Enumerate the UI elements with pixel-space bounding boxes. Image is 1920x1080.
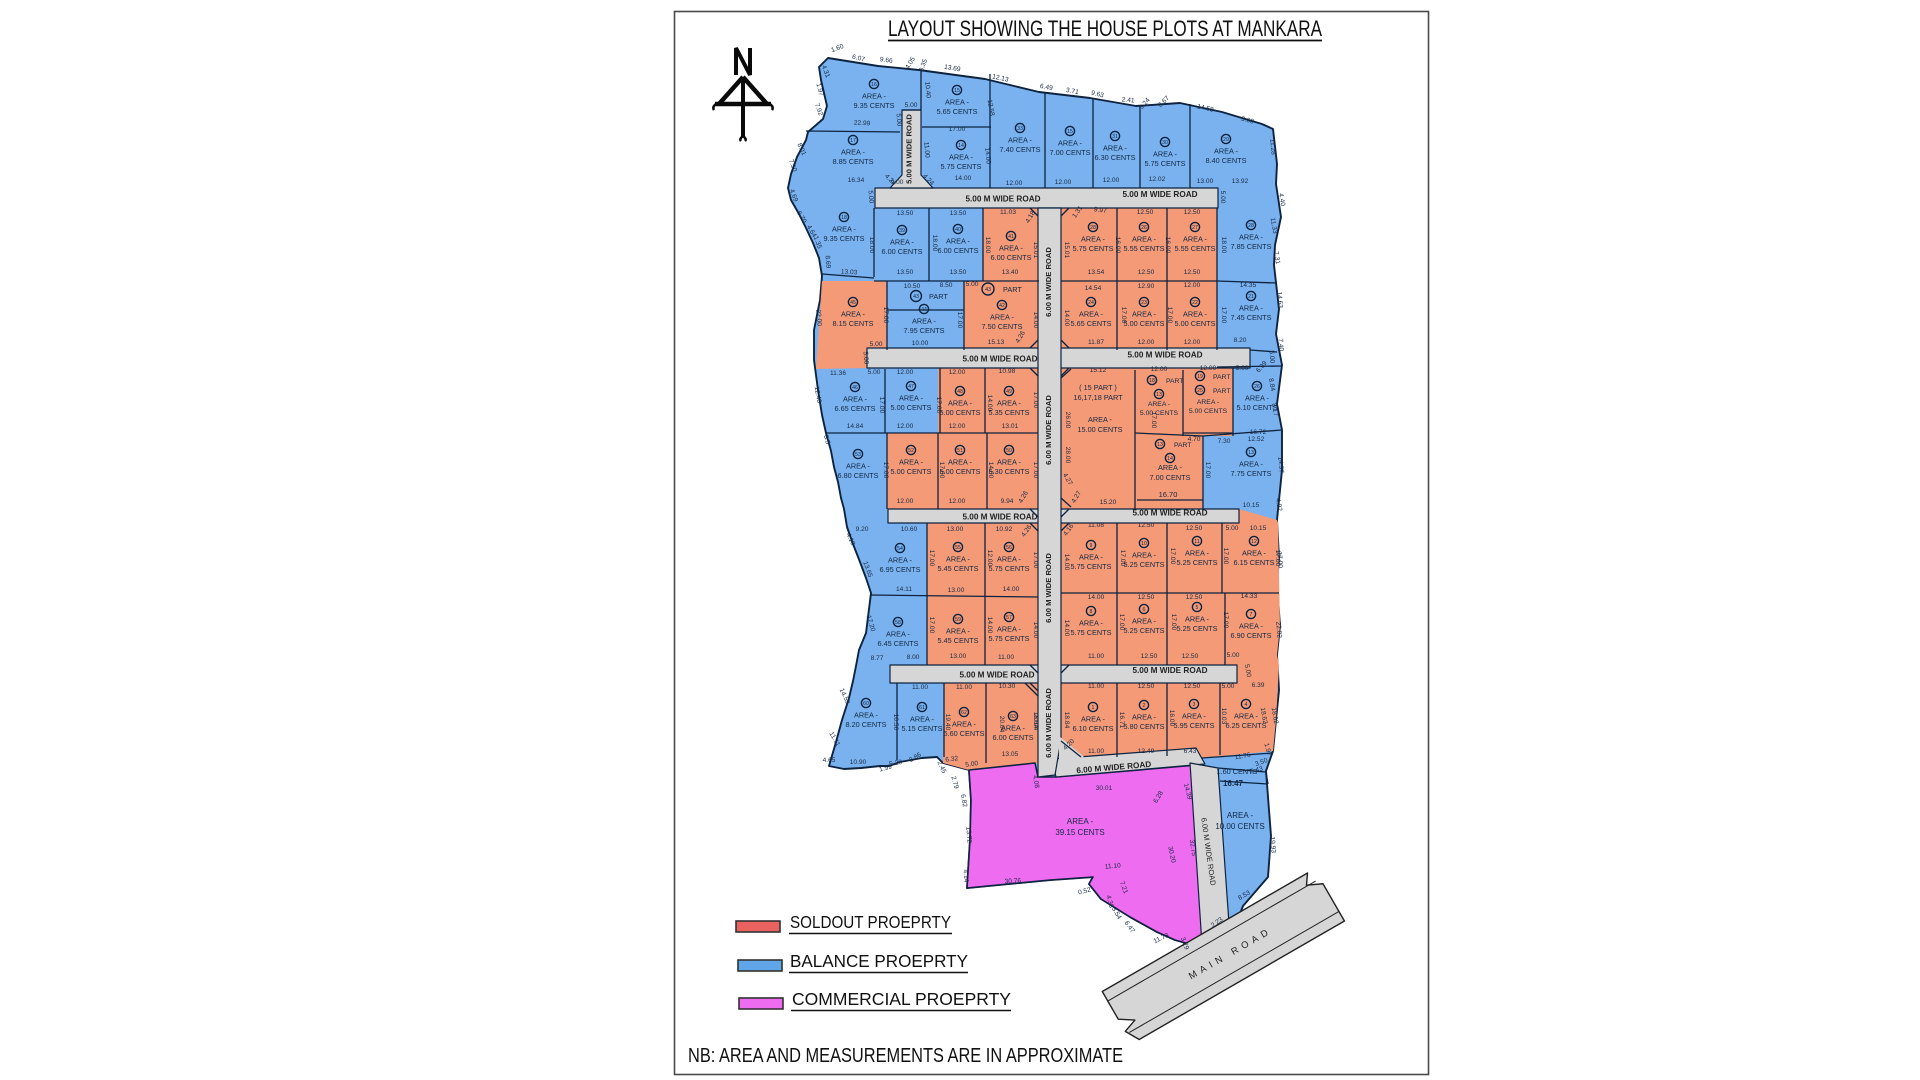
svg-text:12.50: 12.50 (1141, 653, 1158, 660)
svg-text:7.30: 7.30 (1218, 438, 1231, 445)
svg-text:26.00: 26.00 (1064, 412, 1071, 429)
svg-text:9.35 CENTS: 9.35 CENTS (824, 234, 865, 243)
svg-text:6.80 CENTS: 6.80 CENTS (838, 471, 879, 480)
svg-text:17.00: 17.00 (1166, 307, 1173, 324)
svg-text:14.00: 14.00 (1063, 620, 1070, 637)
svg-text:6.00 M WIDE ROAD: 6.00 M WIDE ROAD (1044, 688, 1053, 758)
svg-text:59: 59 (955, 617, 961, 623)
svg-text:5.00 CENTS: 5.00 CENTS (1140, 410, 1179, 417)
svg-text:11.08: 11.08 (1088, 522, 1104, 529)
svg-text:14.00: 14.00 (986, 617, 993, 634)
svg-text:AREA -: AREA - (1081, 715, 1105, 724)
svg-text:5.00 M WIDE ROAD: 5.00 M WIDE ROAD (962, 355, 1037, 364)
svg-text:11.00: 11.00 (1088, 653, 1104, 660)
svg-text:13: 13 (1248, 450, 1254, 456)
svg-text:14.11: 14.11 (896, 586, 912, 593)
svg-text:7.50 CENTS: 7.50 CENTS (982, 322, 1023, 331)
svg-text:14.97: 14.97 (1276, 456, 1284, 473)
svg-text:12.02: 12.02 (1149, 176, 1166, 183)
svg-text:12.50: 12.50 (1138, 522, 1155, 529)
svg-text:33: 33 (1017, 126, 1023, 132)
svg-text:10.15: 10.15 (1243, 502, 1260, 509)
svg-text:6.00 CENTS: 6.00 CENTS (991, 253, 1032, 262)
svg-text:AREA -: AREA - (1185, 615, 1209, 624)
svg-text:7.40: 7.40 (1276, 338, 1284, 352)
svg-text:5.25 CENTS: 5.25 CENTS (1177, 624, 1218, 633)
svg-text:14.00: 14.00 (983, 147, 991, 164)
svg-text:25: 25 (1197, 388, 1203, 394)
svg-text:18.00: 18.00 (984, 237, 991, 254)
svg-text:10.50: 10.50 (904, 283, 921, 290)
svg-text:AREA -: AREA - (1079, 619, 1103, 628)
svg-text:NB: AREA AND MEASUREMENTS ARE: NB: AREA AND MEASUREMENTS ARE IN APPROXI… (688, 1045, 1123, 1067)
svg-text:42: 42 (999, 303, 1005, 309)
svg-text:15.00 CENTS: 15.00 CENTS (1077, 425, 1122, 434)
svg-text:13.50: 13.50 (950, 210, 967, 217)
svg-text:AREA -: AREA - (1081, 235, 1105, 244)
svg-text:12.00: 12.00 (897, 423, 914, 430)
svg-text:PART: PART (929, 292, 948, 301)
svg-text:6.43: 6.43 (1184, 748, 1197, 755)
svg-text:AREA -: AREA - (1239, 304, 1263, 313)
svg-text:AREA -: AREA - (1197, 399, 1219, 406)
svg-text:28: 28 (1248, 223, 1254, 229)
svg-text:39: 39 (899, 228, 905, 234)
svg-text:12.00: 12.00 (1055, 179, 1072, 186)
svg-text:PART: PART (1213, 374, 1231, 381)
svg-text:AREA -: AREA - (888, 556, 912, 565)
svg-text:5.75 CENTS: 5.75 CENTS (1145, 159, 1186, 168)
svg-text:5.75 CENTS: 5.75 CENTS (989, 564, 1030, 573)
svg-text:5.45 CENTS: 5.45 CENTS (938, 564, 979, 573)
svg-text:AREA -: AREA - (946, 237, 970, 246)
svg-text:30.76: 30.76 (1004, 878, 1021, 886)
svg-text:18: 18 (841, 215, 847, 221)
svg-text:16,17,18 PART: 16,17,18 PART (1073, 393, 1123, 402)
svg-text:19.93: 19.93 (1268, 836, 1276, 853)
svg-text:40: 40 (955, 227, 961, 233)
svg-text:8.40 CENTS: 8.40 CENTS (1206, 156, 1247, 165)
svg-text:17.00: 17.00 (1274, 550, 1281, 567)
svg-text:5.00: 5.00 (966, 281, 979, 288)
svg-text:10.60: 10.60 (901, 526, 918, 533)
svg-text:11.00: 11.00 (912, 684, 928, 691)
svg-text:6.00 M WIDE ROAD: 6.00 M WIDE ROAD (1044, 247, 1053, 317)
svg-text:57: 57 (1006, 615, 1012, 621)
svg-text:AREA -: AREA - (1079, 310, 1103, 319)
svg-text:7: 7 (1250, 612, 1253, 618)
svg-text:18.00: 18.00 (868, 237, 875, 254)
svg-text:5.00 CENTS: 5.00 CENTS (1189, 408, 1228, 415)
svg-text:10.00: 10.00 (912, 340, 929, 347)
svg-text:19: 19 (1197, 374, 1203, 380)
svg-text:14.00: 14.00 (987, 462, 994, 479)
svg-text:50: 50 (1006, 448, 1012, 454)
svg-text:5.35 CENTS: 5.35 CENTS (989, 408, 1030, 417)
svg-text:5.00: 5.00 (1267, 350, 1275, 364)
svg-text:PART: PART (1003, 285, 1022, 294)
svg-text:10.40: 10.40 (923, 81, 931, 98)
svg-text:AREA -: AREA - (1132, 617, 1156, 626)
svg-text:5.00 CENTS: 5.00 CENTS (891, 467, 932, 476)
svg-text:5.55 CENTS: 5.55 CENTS (1175, 244, 1216, 253)
svg-text:14.00: 14.00 (1088, 594, 1105, 601)
svg-text:62: 62 (961, 710, 967, 716)
svg-text:AREA -: AREA - (1132, 235, 1156, 244)
svg-text:AREA -: AREA - (1239, 233, 1263, 242)
svg-text:45: 45 (850, 300, 856, 306)
svg-text:12.50: 12.50 (1138, 683, 1155, 690)
svg-text:12.00: 12.00 (897, 498, 914, 505)
svg-text:17.00: 17.00 (1220, 307, 1227, 324)
svg-text:5.60 CENTS: 5.60 CENTS (944, 729, 985, 738)
svg-text:14.63: 14.63 (1275, 291, 1283, 308)
svg-text:15: 15 (954, 88, 960, 94)
svg-text:5.00: 5.00 (861, 351, 869, 365)
svg-text:AREA -: AREA - (946, 627, 970, 636)
svg-text:11.87: 11.87 (1088, 339, 1104, 346)
svg-text:8.20 CENTS: 8.20 CENTS (846, 720, 887, 729)
svg-text:5.25 CENTS: 5.25 CENTS (1124, 560, 1165, 569)
svg-text:AREA -: AREA - (1153, 150, 1177, 159)
svg-text:2.41: 2.41 (1121, 96, 1135, 104)
svg-text:17.00: 17.00 (1150, 412, 1157, 429)
svg-text:47: 47 (908, 384, 914, 390)
svg-text:14.00: 14.00 (1032, 312, 1039, 329)
svg-text:14.33: 14.33 (1241, 593, 1258, 600)
svg-text:13.92: 13.92 (1232, 178, 1249, 185)
svg-text:12.49: 12.49 (1138, 748, 1155, 755)
svg-text:AREA -: AREA - (1058, 139, 1082, 148)
svg-text:AREA -: AREA - (1185, 549, 1209, 558)
svg-text:17.00: 17.00 (1169, 548, 1176, 565)
svg-text:15.13: 15.13 (988, 339, 1005, 346)
svg-text:22.02: 22.02 (1274, 621, 1282, 638)
svg-text:44: 44 (921, 307, 927, 313)
svg-text:11.00: 11.00 (922, 142, 930, 159)
svg-text:12.52: 12.52 (1248, 436, 1265, 443)
svg-text:12.50: 12.50 (1184, 209, 1201, 216)
svg-text:11.36: 11.36 (830, 370, 846, 377)
svg-text:11.03: 11.03 (1000, 209, 1016, 216)
svg-text:6.00 M WIDE ROAD: 6.00 M WIDE ROAD (1044, 395, 1053, 465)
svg-text:6.65 CENTS: 6.65 CENTS (835, 404, 876, 413)
svg-text:9: 9 (1090, 543, 1093, 549)
svg-text:53: 53 (855, 452, 861, 458)
svg-text:17.00: 17.00 (949, 126, 966, 133)
svg-text:49: 49 (1006, 389, 1012, 395)
svg-text:AREA -: AREA - (1239, 622, 1263, 631)
svg-text:5.00 M WIDE ROAD: 5.00 M WIDE ROAD (1127, 351, 1202, 360)
svg-text:10.98: 10.98 (999, 368, 1016, 375)
svg-text:6.15 CENTS: 6.15 CENTS (1234, 558, 1275, 567)
svg-text:6.00 M WIDE ROAD: 6.00 M WIDE ROAD (1044, 553, 1053, 623)
svg-text:30: 30 (1162, 140, 1168, 146)
svg-text:AREA -: AREA - (846, 462, 870, 471)
svg-text:17.00: 17.00 (1120, 307, 1127, 324)
svg-text:14.35: 14.35 (1240, 282, 1257, 289)
svg-text:6.00 CENTS: 6.00 CENTS (993, 733, 1034, 742)
svg-text:11.00: 11.00 (1088, 683, 1104, 690)
svg-text:12.90: 12.90 (1138, 283, 1155, 290)
svg-text:12.00: 12.00 (1006, 180, 1023, 187)
svg-text:7.85 CENTS: 7.85 CENTS (1231, 242, 1272, 251)
svg-text:5.00 CENTS: 5.00 CENTS (940, 408, 981, 417)
svg-text:28: 28 (1090, 225, 1096, 231)
svg-text:3: 3 (1193, 702, 1196, 708)
svg-text:10.90: 10.90 (850, 759, 867, 766)
svg-text:( 15 PART ): ( 15 PART ) (1079, 383, 1117, 392)
svg-text:26: 26 (1141, 225, 1147, 231)
svg-text:5.00: 5.00 (868, 369, 881, 376)
svg-text:AREA -: AREA - (1242, 549, 1266, 558)
svg-text:5.55 CENTS: 5.55 CENTS (1124, 244, 1165, 253)
svg-text:16.64: 16.64 (1032, 712, 1039, 729)
svg-text:22.99: 22.99 (854, 120, 871, 128)
svg-text:60: 60 (863, 701, 869, 707)
svg-text:17.00: 17.00 (1222, 548, 1229, 565)
svg-text:12.50: 12.50 (1186, 525, 1203, 532)
svg-text:14.00: 14.00 (1063, 310, 1070, 327)
svg-text:22.00: 22.00 (814, 309, 822, 326)
svg-text:17.00: 17.00 (928, 550, 935, 567)
svg-text:17.00: 17.00 (956, 312, 963, 329)
svg-text:13.72: 13.72 (964, 826, 972, 843)
svg-text:11.00: 11.00 (956, 684, 972, 691)
svg-text:AREA -: AREA - (854, 711, 878, 720)
svg-text:AREA -: AREA - (949, 153, 973, 162)
svg-text:7.95 CENTS: 7.95 CENTS (904, 326, 945, 335)
svg-text:14: 14 (958, 143, 964, 149)
svg-text:12.50: 12.50 (1184, 269, 1201, 276)
svg-text:16.71: 16.71 (1118, 712, 1125, 729)
svg-text:10.92: 10.92 (996, 526, 1013, 533)
svg-text:AREA -: AREA - (832, 225, 856, 234)
svg-text:11.10: 11.10 (1105, 862, 1122, 870)
svg-text:12.00: 12.00 (949, 423, 966, 430)
svg-text:17.00: 17.00 (1118, 614, 1125, 631)
svg-text:AREA -: AREA - (1158, 463, 1182, 472)
svg-text:16.47: 16.47 (1223, 779, 1244, 788)
svg-text:4.70: 4.70 (1188, 436, 1201, 443)
svg-text:5.75 CENTS: 5.75 CENTS (1071, 628, 1112, 637)
svg-text:1: 1 (1092, 705, 1095, 711)
svg-text:13.00: 13.00 (1197, 178, 1214, 185)
svg-text:5.00 CENTS: 5.00 CENTS (1175, 319, 1216, 328)
svg-text:5.00 CENTS: 5.00 CENTS (891, 403, 932, 412)
svg-text:15.20: 15.20 (1100, 499, 1117, 506)
svg-text:8.15 CENTS: 8.15 CENTS (833, 319, 874, 328)
svg-text:14.00: 14.00 (1032, 622, 1039, 639)
svg-text:16.72: 16.72 (1250, 429, 1267, 436)
svg-text:56: 56 (1006, 545, 1012, 551)
svg-text:19.40: 19.40 (944, 714, 951, 731)
svg-text:39.15 CENTS: 39.15 CENTS (1055, 828, 1104, 837)
svg-text:5.00: 5.00 (1226, 525, 1239, 532)
svg-text:AREA -: AREA - (948, 458, 972, 467)
svg-text:17.00: 17.00 (878, 397, 885, 414)
svg-text:14.00: 14.00 (955, 175, 972, 182)
svg-text:14.00: 14.00 (986, 395, 993, 412)
svg-text:14.00: 14.00 (1003, 586, 1020, 593)
svg-text:9.35 CENTS: 9.35 CENTS (854, 101, 895, 110)
svg-text:AREA -: AREA - (1148, 401, 1170, 408)
svg-text:12.00: 12.00 (1138, 339, 1155, 346)
svg-text:13.00: 13.00 (950, 653, 967, 660)
svg-text:27: 27 (1192, 225, 1198, 231)
svg-text:6.00 CENTS: 6.00 CENTS (882, 247, 923, 256)
svg-text:AREA -: AREA - (1183, 235, 1207, 244)
svg-text:AREA -: AREA - (997, 555, 1021, 564)
svg-text:5.75 CENTS: 5.75 CENTS (989, 634, 1030, 643)
svg-text:BALANCE PROEPRTY: BALANCE PROEPRTY (790, 951, 968, 971)
svg-text:7.00 CENTS: 7.00 CENTS (1150, 473, 1191, 482)
svg-text:16.00: 16.00 (1168, 710, 1175, 727)
svg-text:AREA -: AREA - (910, 715, 934, 724)
svg-text:7.45 CENTS: 7.45 CENTS (1231, 313, 1272, 322)
svg-text:51: 51 (957, 448, 963, 454)
svg-text:10.50: 10.50 (892, 714, 899, 731)
svg-text:5.00 M WIDE ROAD: 5.00 M WIDE ROAD (1132, 666, 1207, 675)
svg-text:20.04: 20.04 (998, 716, 1005, 733)
svg-text:AREA -: AREA - (1239, 460, 1263, 469)
svg-text:PART: PART (1213, 388, 1231, 395)
svg-text:AREA -: AREA - (1103, 144, 1127, 153)
svg-text:5.00: 5.00 (1222, 683, 1235, 690)
svg-text:5.00 CENTS: 5.00 CENTS (1124, 319, 1165, 328)
svg-text:12.50: 12.50 (1138, 269, 1155, 276)
svg-text:12.50: 12.50 (1137, 209, 1154, 216)
svg-text:PART: PART (1174, 442, 1192, 449)
svg-text:AREA -: AREA - (946, 555, 970, 564)
svg-text:12.50: 12.50 (1186, 594, 1203, 601)
svg-text:4.14: 4.14 (961, 869, 969, 883)
svg-text:AREA -: AREA - (1132, 713, 1156, 722)
svg-text:30.01: 30.01 (1096, 785, 1113, 792)
svg-text:16.00: 16.00 (1114, 237, 1121, 254)
svg-text:SOLDOUT PROEPRTY: SOLDOUT PROEPRTY (790, 912, 951, 932)
svg-text:23: 23 (1141, 300, 1147, 306)
svg-text:61: 61 (919, 705, 925, 711)
svg-text:13.54: 13.54 (1088, 269, 1105, 276)
svg-text:6: 6 (1143, 607, 1146, 613)
svg-text:AREA -: AREA - (948, 399, 972, 408)
svg-text:54: 54 (897, 546, 903, 552)
svg-text:6.30 CENTS: 6.30 CENTS (1095, 153, 1136, 162)
svg-text:12: 12 (1251, 539, 1257, 545)
svg-text:6.10 CENTS: 6.10 CENTS (1073, 724, 1114, 733)
svg-text:5.00 M WIDE ROAD: 5.00 M WIDE ROAD (962, 513, 1037, 522)
svg-text:11.00: 11.00 (998, 654, 1014, 661)
svg-text:13.40: 13.40 (1002, 269, 1019, 276)
svg-text:AREA -: AREA - (1132, 310, 1156, 319)
svg-text:5.00 M WIDE ROAD: 5.00 M WIDE ROAD (905, 114, 914, 184)
svg-text:AREA -: AREA - (890, 238, 914, 247)
svg-text:31: 31 (1112, 134, 1118, 140)
svg-text:4.65: 4.65 (823, 757, 836, 764)
svg-text:AREA -: AREA - (1079, 553, 1103, 562)
svg-text:17.00: 17.00 (1170, 614, 1177, 631)
svg-text:5.45 CENTS: 5.45 CENTS (938, 636, 979, 645)
svg-text:5.15 CENTS: 5.15 CENTS (902, 724, 943, 733)
svg-text:9.20: 9.20 (856, 526, 869, 533)
svg-text:13: 13 (1156, 392, 1162, 398)
svg-text:12.00: 12.00 (1103, 177, 1120, 184)
svg-text:7.00 CENTS: 7.00 CENTS (1050, 148, 1091, 157)
svg-text:12.50: 12.50 (1182, 653, 1199, 660)
svg-text:11.00: 11.00 (1088, 748, 1104, 755)
svg-text:15.01: 15.01 (1032, 242, 1039, 259)
svg-text:5.00: 5.00 (1227, 652, 1240, 659)
svg-text:17.00: 17.00 (1032, 392, 1039, 409)
svg-text:5.00 M WIDE ROAD: 5.00 M WIDE ROAD (959, 671, 1034, 680)
svg-text:AREA -: AREA - (1214, 147, 1238, 156)
svg-text:13.00: 13.00 (948, 587, 965, 594)
svg-text:AREA -: AREA - (843, 395, 867, 404)
svg-text:AREA -: AREA - (945, 98, 969, 107)
svg-text:AREA -: AREA - (997, 399, 1021, 408)
svg-text:AREA -: AREA - (1008, 136, 1032, 145)
svg-text:AREA -: AREA - (1182, 712, 1206, 721)
svg-text:13.05: 13.05 (1002, 751, 1019, 758)
svg-text:43: 43 (913, 294, 919, 300)
svg-text:17.00: 17.00 (928, 617, 935, 634)
svg-text:AREA -: AREA - (1183, 310, 1207, 319)
svg-text:17.00: 17.00 (938, 462, 945, 479)
svg-text:5: 5 (1196, 605, 1199, 611)
svg-text:12.00: 12.00 (949, 369, 966, 376)
svg-text:5.25 CENTS: 5.25 CENTS (1177, 558, 1218, 567)
svg-text:8.00: 8.00 (907, 654, 920, 661)
svg-text:10.30: 10.30 (999, 683, 1016, 690)
svg-text:21: 21 (1248, 294, 1254, 300)
svg-text:12.00: 12.00 (1184, 282, 1201, 289)
svg-text:AREA -: AREA - (841, 148, 865, 157)
svg-text:5.65 CENTS: 5.65 CENTS (937, 107, 978, 116)
svg-text:13.50: 13.50 (950, 269, 967, 276)
svg-text:PART: PART (1166, 378, 1184, 385)
svg-text:5.75 CENTS: 5.75 CENTS (1073, 244, 1114, 253)
svg-text:13.00: 13.00 (947, 526, 964, 533)
svg-text:26: 26 (1254, 384, 1260, 390)
svg-text:COMMERCIAL PROEPRTY: COMMERCIAL PROEPRTY (792, 989, 1011, 1009)
svg-text:15.12: 15.12 (1090, 367, 1107, 374)
svg-text:17.00: 17.00 (1032, 462, 1039, 479)
svg-text:AREA -: AREA - (990, 313, 1014, 322)
svg-text:AREA -: AREA - (912, 317, 936, 326)
svg-text:12.00: 12.00 (897, 369, 914, 376)
svg-text:17: 17 (850, 138, 856, 144)
svg-text:17.00: 17.00 (882, 307, 889, 324)
svg-text:12.00: 12.00 (1184, 339, 1201, 346)
svg-text:8.85 CENTS: 8.85 CENTS (833, 157, 874, 166)
svg-text:10.03: 10.03 (1220, 708, 1227, 725)
svg-text:6.95 CENTS: 6.95 CENTS (880, 565, 921, 574)
svg-text:22: 22 (1192, 300, 1198, 306)
svg-text:29: 29 (1223, 137, 1229, 143)
svg-text:6.39: 6.39 (1252, 682, 1265, 689)
svg-text:8: 8 (1090, 609, 1093, 615)
svg-text:17.00: 17.00 (1204, 462, 1211, 479)
svg-text:18.00: 18.00 (1220, 237, 1227, 254)
svg-text:13.50: 13.50 (897, 210, 914, 217)
svg-text:10: 10 (1141, 541, 1147, 547)
svg-text:18: 18 (1149, 378, 1155, 384)
svg-text:5.00: 5.00 (870, 341, 883, 348)
svg-text:AREA -: AREA - (886, 630, 910, 639)
svg-text:8.77: 8.77 (871, 655, 884, 662)
svg-text:52: 52 (908, 448, 914, 454)
